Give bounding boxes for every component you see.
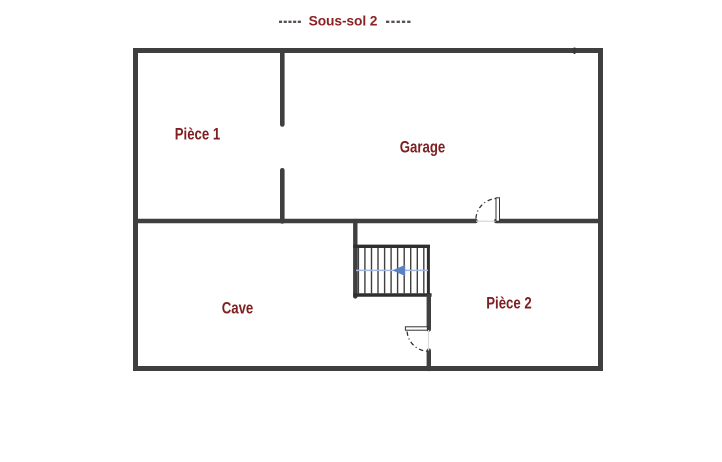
svg-text:Garage: Garage [400, 138, 445, 157]
svg-text:Pièce 1: Pièce 1 [175, 125, 220, 144]
svg-text:Sous-sol 2: Sous-sol 2 [309, 14, 378, 29]
svg-text:Cave: Cave [222, 299, 254, 318]
svg-text:Pièce 2: Pièce 2 [486, 294, 531, 313]
